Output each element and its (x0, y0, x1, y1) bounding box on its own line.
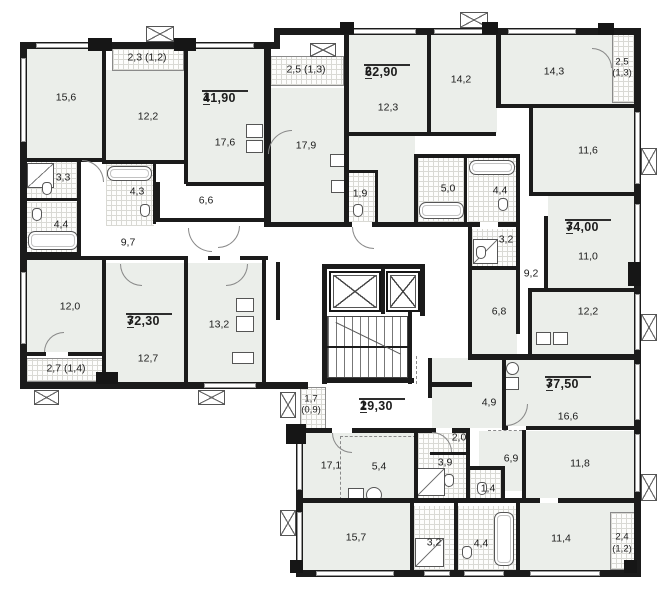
ac-unit-box (310, 43, 336, 57)
room (188, 48, 265, 183)
wall (264, 222, 350, 227)
pillar (598, 23, 614, 35)
balcony-area-label: (1,2) (612, 544, 632, 555)
wall (454, 502, 458, 572)
room-area-label: 3,3 (56, 173, 71, 184)
room-area-label: 12,2 (578, 307, 598, 318)
bathtub (107, 166, 152, 181)
window (352, 29, 416, 34)
apartment-area: 72,30 (127, 314, 160, 329)
window (424, 571, 450, 576)
wall (322, 378, 414, 383)
balcony-area-label: (0,9) (301, 405, 321, 416)
door-opening (540, 498, 558, 503)
ac-unit-box (641, 148, 657, 175)
pillar (286, 424, 306, 444)
wall (428, 382, 472, 387)
floor-plan: 1 41,90 2 62,90 3 74,00 3 72,30 1 29,30 … (0, 0, 666, 600)
elevator-shaft (386, 271, 420, 312)
wall (262, 260, 266, 382)
room-area-label: 4,4 (54, 220, 69, 231)
wall (77, 160, 81, 256)
kitchen-appliance-icon (236, 298, 254, 312)
wall (184, 49, 188, 184)
balcony-area-label: 2,5 (1,3) (286, 65, 325, 76)
window (635, 112, 640, 184)
balcony-area-label: 2,3 (1,2) (127, 53, 166, 64)
balcony-area-label: 2,4 (615, 532, 628, 543)
balcony-area-label: (1,3) (612, 68, 632, 79)
door-opening (220, 256, 240, 260)
bathtub (494, 512, 514, 566)
kitchen-appliance-icon (505, 377, 519, 390)
wall (496, 28, 501, 108)
room-area-label: 3,9 (438, 458, 453, 469)
room-area-label: 5,0 (441, 184, 456, 195)
room-area-label: 17,6 (215, 138, 235, 149)
room-area-label: 15,7 (346, 533, 366, 544)
window (635, 294, 640, 350)
room-area-label: 12,0 (60, 302, 80, 313)
wall (102, 160, 188, 164)
shower (417, 468, 445, 496)
room-area-label: 12,2 (138, 112, 158, 123)
room-area-label: 9,2 (524, 269, 539, 280)
room-area-label: 12,7 (138, 354, 158, 365)
wall (102, 49, 106, 161)
wall (529, 107, 533, 195)
door-opening (188, 256, 208, 260)
room-area-label: 16,6 (558, 412, 578, 423)
apartment-tag-41-90: 1 41,90 (202, 90, 248, 92)
pillar (174, 38, 196, 51)
wall (186, 182, 268, 186)
wall (468, 266, 518, 270)
kitchen-appliance-icon (246, 124, 263, 138)
apartment-tag-74-00: 3 74,00 (565, 219, 611, 221)
apartment-tag-62-90: 2 62,90 (364, 64, 410, 66)
wall (346, 132, 496, 136)
toilet (444, 474, 454, 487)
bathtub (469, 160, 515, 175)
room-area-label: 4,3 (130, 187, 145, 198)
window (316, 571, 394, 576)
room-area-label: 9,7 (121, 238, 136, 249)
wall (24, 158, 104, 162)
wall (264, 42, 271, 225)
apartment-area: 29,30 (360, 399, 393, 414)
room-kitchen (532, 292, 635, 355)
ac-unit-box (641, 314, 657, 341)
room-area-label: 11,8 (570, 459, 590, 470)
wall (344, 28, 349, 222)
apartment-area: 62,90 (365, 65, 398, 80)
room-kitchen (432, 358, 503, 428)
room-area-label: 11,4 (551, 534, 571, 545)
room-area-label: 13,2 (209, 320, 229, 331)
wall (428, 358, 432, 398)
window (194, 43, 254, 48)
room-area-label: 3,2 (427, 538, 442, 549)
room-area-label: 17,1 (321, 461, 341, 472)
pillar (88, 38, 112, 51)
room-area-label: 4,9 (482, 398, 497, 409)
pillar (340, 22, 354, 34)
pillar (628, 262, 641, 286)
room-area-label: 5,4 (372, 462, 387, 473)
room-area-label: 1,4 (481, 484, 496, 495)
wall (430, 452, 470, 455)
wall (20, 382, 308, 389)
window (530, 571, 600, 576)
kitchen-appliance-icon (330, 154, 345, 167)
window (21, 58, 26, 142)
wall (408, 312, 412, 384)
wall (420, 264, 425, 316)
wall (468, 226, 472, 358)
room-area-label: 6,6 (199, 196, 214, 207)
window (635, 434, 640, 492)
wall (528, 288, 636, 292)
corridor-dashed-line (416, 356, 417, 384)
window (36, 43, 92, 48)
room-area-label: 15,6 (56, 93, 76, 104)
room-area-label: 14,3 (544, 67, 564, 78)
balcony-area-label: 2,5 (615, 57, 628, 68)
room (349, 35, 428, 133)
room-area-label: 11,6 (578, 146, 598, 157)
wall (322, 264, 424, 269)
wall (156, 182, 160, 222)
wall (516, 502, 520, 572)
wall (528, 288, 532, 358)
room-area-label: 11,0 (578, 252, 598, 263)
toilet (498, 198, 508, 211)
bathtub (28, 231, 78, 250)
ac-unit-box (641, 474, 657, 501)
kitchen-appliance-icon (553, 332, 568, 345)
pillar (482, 22, 498, 34)
wall (529, 192, 635, 196)
wall (427, 28, 431, 134)
toilet (353, 204, 363, 217)
wall (410, 502, 414, 572)
apartment-tag-29-30: 1 29,30 (359, 398, 405, 400)
apartment-area: 74,00 (566, 220, 599, 235)
kitchen-appliance-icon (246, 140, 263, 153)
ac-unit-box (280, 510, 296, 536)
toilet (140, 204, 150, 217)
wall (468, 466, 504, 470)
ac-unit-box (34, 390, 59, 405)
wall (346, 170, 378, 173)
wall (381, 268, 385, 314)
pillar (96, 372, 118, 384)
pillar (624, 560, 637, 573)
wall (516, 226, 520, 334)
wall (184, 260, 188, 382)
wall (24, 198, 79, 201)
wall (544, 216, 548, 290)
room-area-label: 3,2 (499, 235, 514, 246)
room (548, 196, 635, 289)
ac-unit-box (198, 390, 225, 405)
room-area-label: 6,8 (492, 307, 507, 318)
toilet (476, 246, 486, 259)
kitchen-appliance-icon (232, 352, 254, 364)
toilet (42, 182, 52, 195)
window (464, 571, 504, 576)
window (635, 364, 640, 420)
toilet (32, 208, 42, 221)
room-area-label: 6,9 (504, 454, 519, 465)
window (21, 272, 26, 344)
room-area-label: 2,0 (452, 433, 467, 444)
balcony-area-label: 1,7 (304, 394, 317, 405)
door-opening (508, 426, 526, 430)
apartment-area: 41,90 (203, 91, 236, 106)
ac-unit-box (280, 392, 296, 418)
wall (156, 218, 268, 222)
apartment-tag-77-50: 3 77,50 (545, 376, 591, 378)
kitchen-zone-dashed (488, 430, 522, 431)
window (508, 29, 576, 34)
room-area-label: 4,4 (493, 186, 508, 197)
room-area-label: 4,4 (474, 539, 489, 550)
apartment-area: 77,50 (546, 377, 579, 392)
kitchen-appliance-icon (236, 316, 254, 332)
wall (414, 154, 418, 226)
ac-unit-box (146, 26, 174, 42)
room-area-label: 12,3 (378, 103, 398, 114)
room-area-label: 14,2 (451, 75, 471, 86)
door-opening (46, 352, 68, 356)
door-opening (480, 222, 498, 227)
balcony-area-label: 2,7 (1,4) (46, 364, 85, 375)
wall (501, 466, 505, 502)
window (297, 440, 302, 490)
room-area-label: 17,9 (296, 141, 316, 152)
wall (496, 104, 637, 108)
stair-landing-line (327, 346, 408, 348)
wall (276, 262, 280, 320)
wall (414, 430, 418, 502)
wall (522, 430, 526, 502)
window (204, 383, 256, 388)
wall (516, 154, 520, 226)
kitchen-appliance-icon (536, 332, 551, 345)
wall (300, 498, 470, 503)
kitchen-sink-icon (506, 362, 519, 375)
apartment-tag-72-30: 3 72,30 (126, 313, 172, 315)
elevator-shaft (329, 271, 381, 312)
kitchen-appliance-icon (331, 180, 345, 193)
toilet (462, 546, 472, 559)
room-area-label: 1,9 (353, 189, 368, 200)
wall (464, 158, 467, 226)
wall (468, 354, 638, 360)
wall (102, 256, 106, 382)
window (297, 512, 302, 564)
wall (375, 170, 378, 226)
bathtub (419, 202, 464, 219)
pillar (290, 560, 303, 573)
